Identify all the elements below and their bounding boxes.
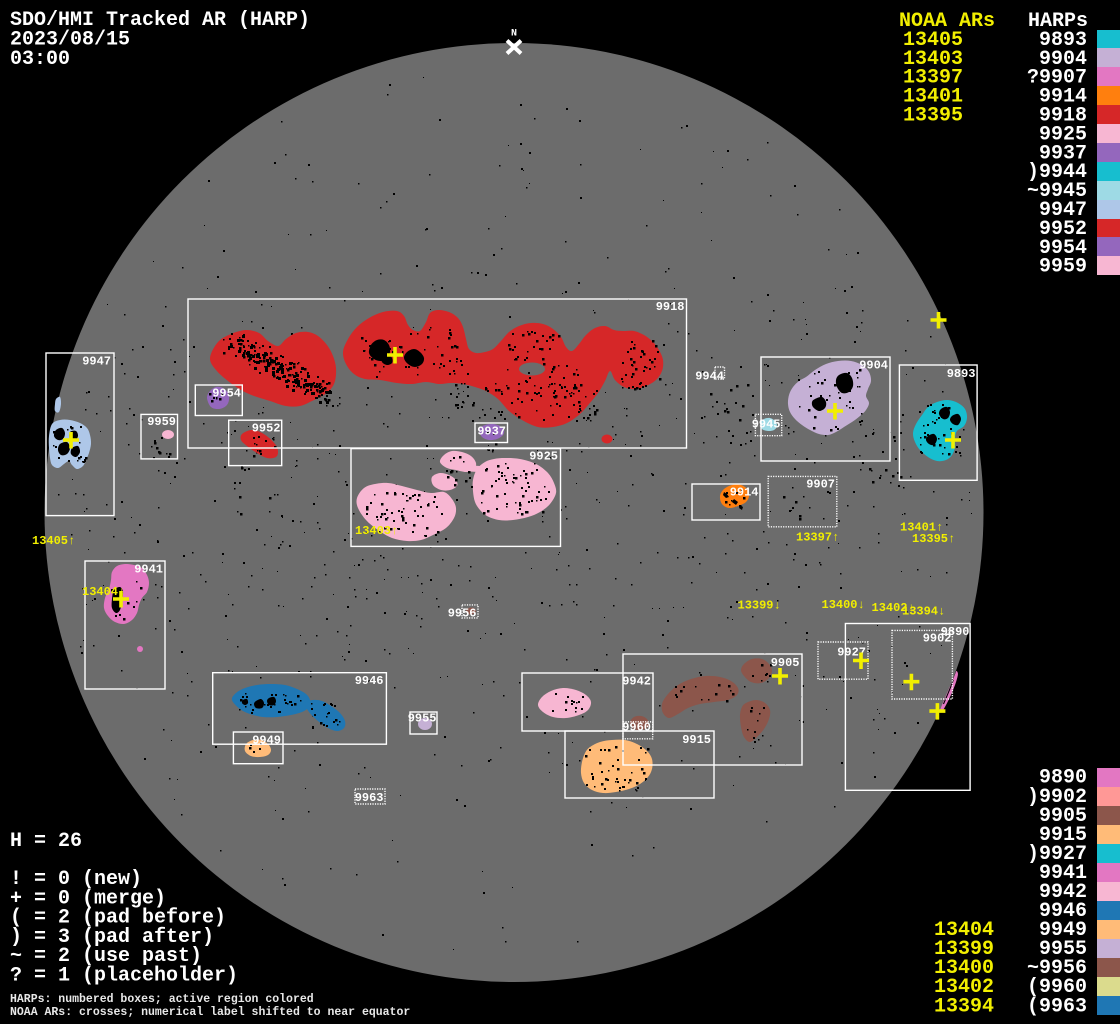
svg-text:9915: 9915	[682, 733, 711, 747]
svg-text:N: N	[511, 29, 517, 40]
svg-text:9941: 9941	[134, 563, 163, 577]
svg-text:9952: 9952	[252, 422, 281, 436]
svg-text:13394↓: 13394↓	[902, 605, 945, 619]
svg-text:9914: 9914	[730, 486, 759, 500]
svg-text:13397↑: 13397↑	[796, 531, 839, 545]
svg-text:9949: 9949	[252, 734, 281, 748]
svg-text:9925: 9925	[529, 450, 558, 464]
svg-text:9947: 9947	[82, 355, 111, 369]
svg-text:9893: 9893	[947, 367, 976, 381]
svg-text:9904: 9904	[859, 359, 888, 373]
svg-text:9944: 9944	[695, 370, 724, 384]
svg-text:9890: 9890	[941, 625, 970, 639]
svg-text:9945: 9945	[752, 418, 781, 432]
svg-text:NOAA ARs: crosses; numerical l: NOAA ARs: crosses; numerical label shift…	[10, 1006, 410, 1019]
svg-text:9946: 9946	[355, 674, 384, 688]
svg-text:(9963: (9963	[1027, 995, 1087, 1018]
svg-text:13404↓: 13404↓	[82, 585, 125, 599]
svg-text:9907: 9907	[806, 478, 835, 492]
svg-text:9937: 9937	[477, 425, 506, 439]
svg-text:9955: 9955	[408, 712, 437, 726]
svg-text:13394: 13394	[934, 995, 994, 1018]
svg-text:9959: 9959	[1039, 256, 1087, 279]
svg-text:9960: 9960	[622, 721, 651, 735]
svg-text:13395↑: 13395↑	[912, 532, 955, 546]
svg-text:9954: 9954	[212, 387, 241, 401]
svg-text:13395: 13395	[903, 105, 963, 128]
svg-text:9942: 9942	[622, 675, 651, 689]
svg-text:HARPs: numbered boxes; active: HARPs: numbered boxes; active region col…	[10, 993, 314, 1006]
svg-text:H = 26: H = 26	[10, 830, 82, 853]
svg-text:? = 1 (placeholder): ? = 1 (placeholder)	[10, 965, 238, 988]
svg-text:03:00: 03:00	[10, 48, 70, 71]
svg-text:9959: 9959	[147, 415, 176, 429]
svg-text:9905: 9905	[771, 656, 800, 670]
svg-text:9918: 9918	[656, 300, 685, 314]
svg-text:9963: 9963	[355, 791, 384, 805]
svg-text:13405↑: 13405↑	[32, 534, 75, 548]
svg-text:13403↑: 13403↑	[355, 524, 398, 538]
svg-text:13400↓: 13400↓	[822, 598, 865, 612]
svg-text:13399↓: 13399↓	[738, 599, 781, 613]
